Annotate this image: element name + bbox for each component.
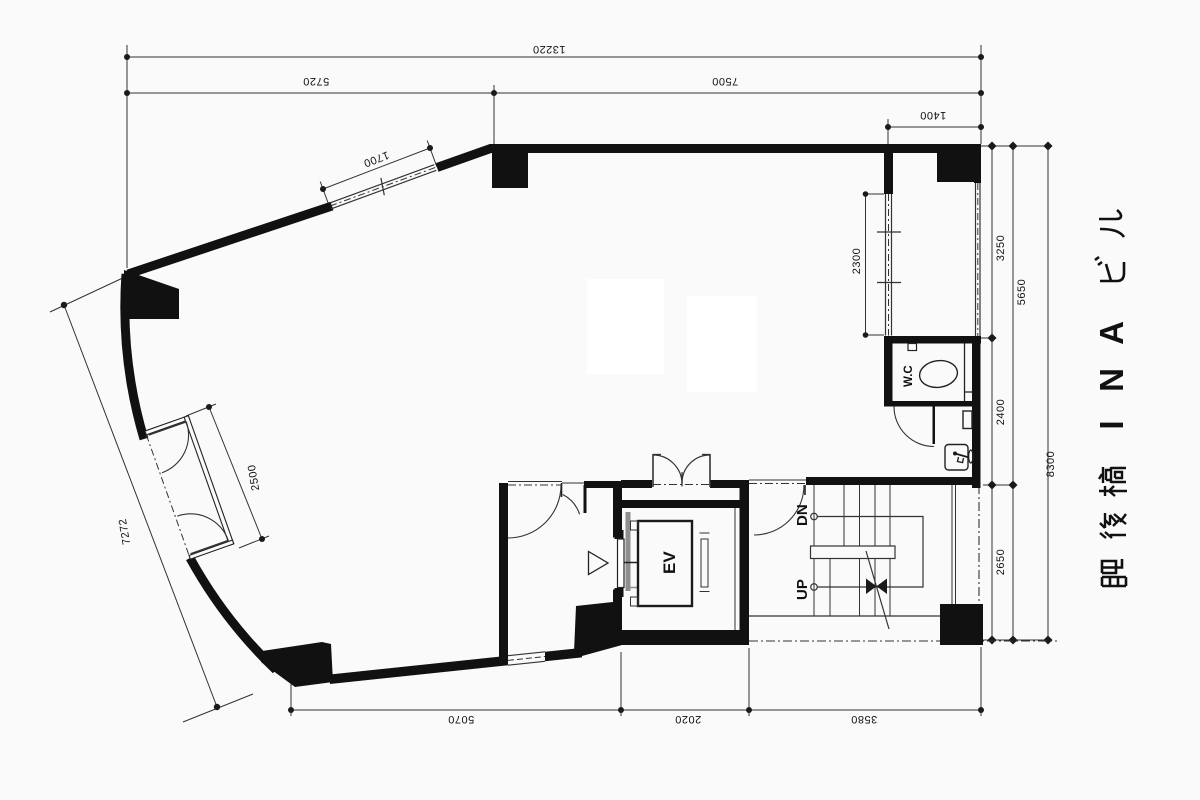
svg-text:I: I bbox=[1093, 420, 1130, 429]
svg-text:3580: 3580 bbox=[851, 713, 877, 725]
svg-text:N: N bbox=[1093, 368, 1130, 392]
svg-text:5070: 5070 bbox=[448, 713, 474, 725]
svg-text:2650: 2650 bbox=[995, 549, 1007, 575]
svg-text:2020: 2020 bbox=[675, 713, 701, 725]
svg-text:W.C: W.C bbox=[903, 365, 915, 387]
svg-text:EV: EV bbox=[660, 551, 679, 574]
svg-text:8300: 8300 bbox=[1045, 451, 1057, 477]
svg-text:1400: 1400 bbox=[920, 109, 946, 121]
svg-text:UP: UP bbox=[794, 579, 811, 600]
svg-text:5720: 5720 bbox=[303, 75, 329, 87]
svg-text:3250: 3250 bbox=[995, 235, 1007, 261]
svg-text:5650: 5650 bbox=[1016, 279, 1028, 305]
svg-text:A: A bbox=[1093, 321, 1130, 345]
svg-text:2400: 2400 bbox=[995, 399, 1007, 425]
svg-text:13220: 13220 bbox=[532, 43, 565, 55]
svg-text:2300: 2300 bbox=[851, 248, 863, 274]
svg-text:7500: 7500 bbox=[712, 75, 738, 87]
svg-text:DN: DN bbox=[794, 504, 811, 526]
